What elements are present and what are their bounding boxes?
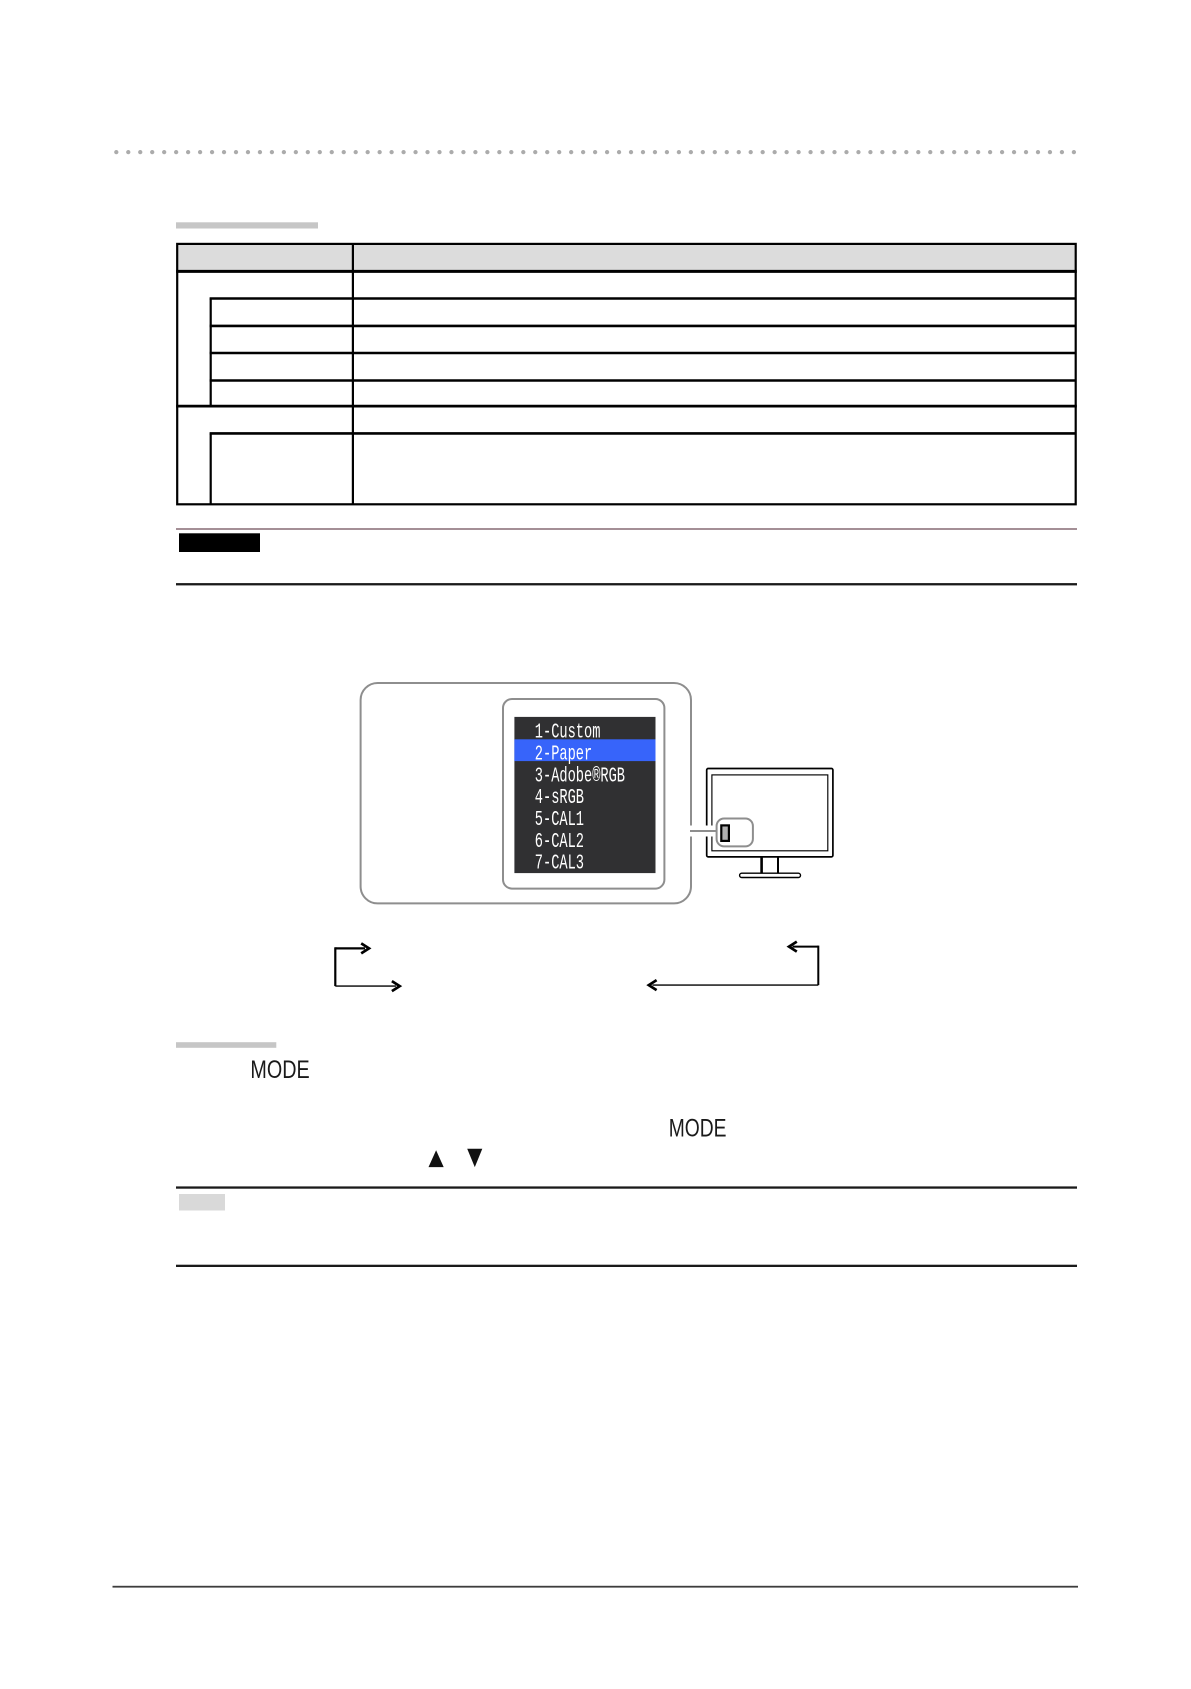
svg-text:6-CAL2: 6-CAL2: [535, 831, 584, 854]
svg-text:3-Adobe®RGB: 3-Adobe®RGB: [535, 765, 625, 788]
svg-text:MODE: MODE: [669, 1116, 727, 1143]
svg-text:5-CAL1: 5-CAL1: [535, 809, 584, 832]
svg-text:1-Custom: 1-Custom: [535, 722, 601, 745]
svg-text:4-sRGB: 4-sRGB: [535, 787, 584, 810]
svg-text:MODE: MODE: [250, 1057, 309, 1084]
svg-text:7-CAL3: 7-CAL3: [535, 853, 584, 876]
svg-text:2-Paper: 2-Paper: [535, 743, 592, 766]
